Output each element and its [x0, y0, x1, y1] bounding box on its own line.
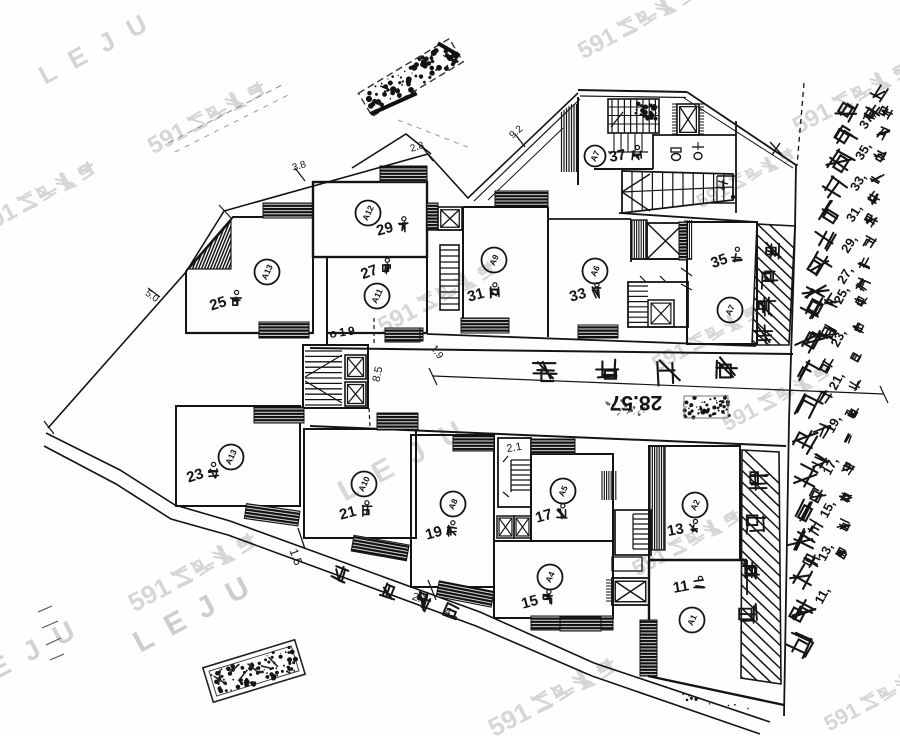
- svg-text:11: 11: [672, 577, 691, 596]
- svg-text:13: 13: [666, 520, 685, 540]
- svg-text:28.57: 28.57: [610, 391, 663, 414]
- svg-text:37: 37: [608, 146, 627, 166]
